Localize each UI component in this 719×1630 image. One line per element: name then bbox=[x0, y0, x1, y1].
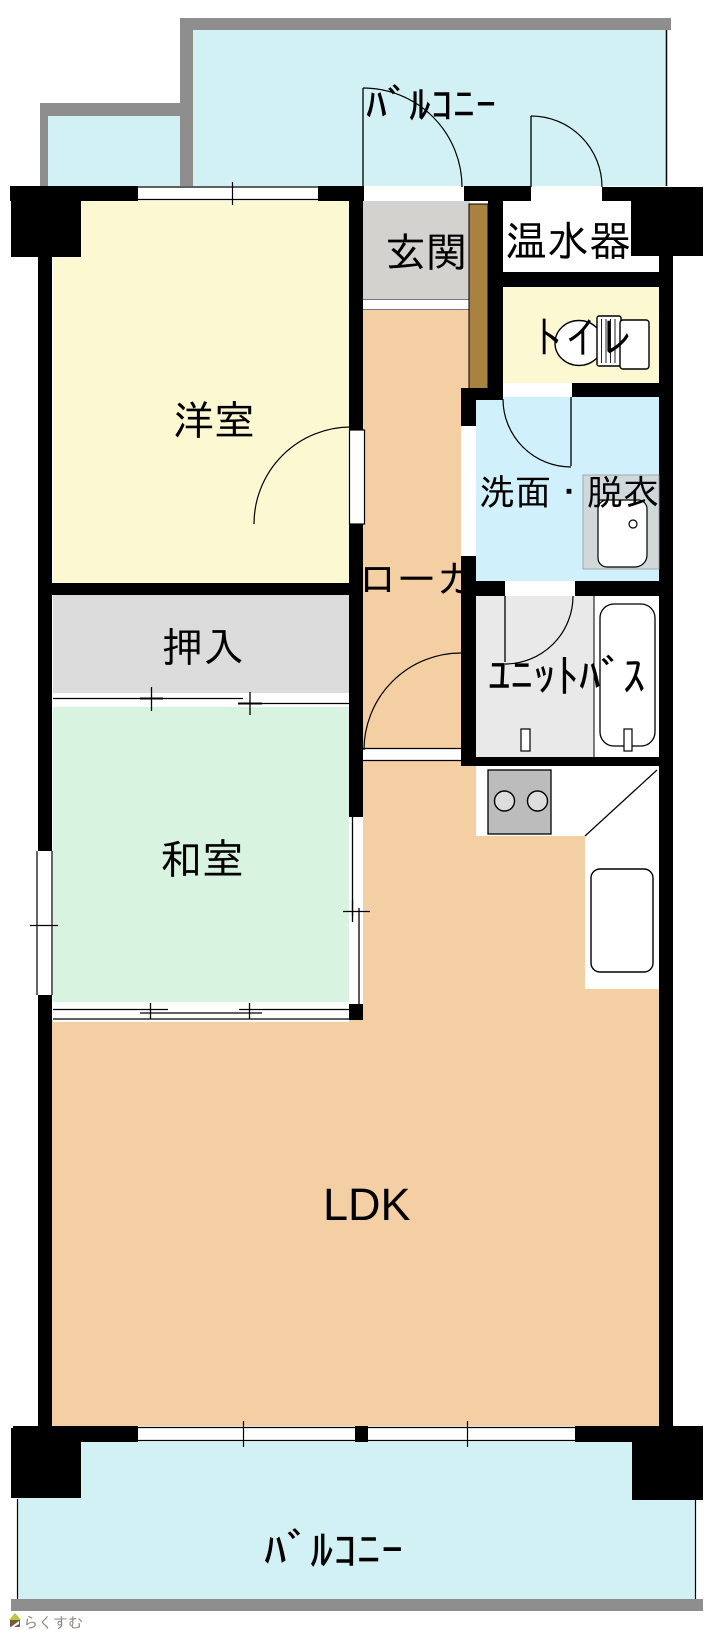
svg-text:LDK: LDK bbox=[323, 1179, 411, 1230]
